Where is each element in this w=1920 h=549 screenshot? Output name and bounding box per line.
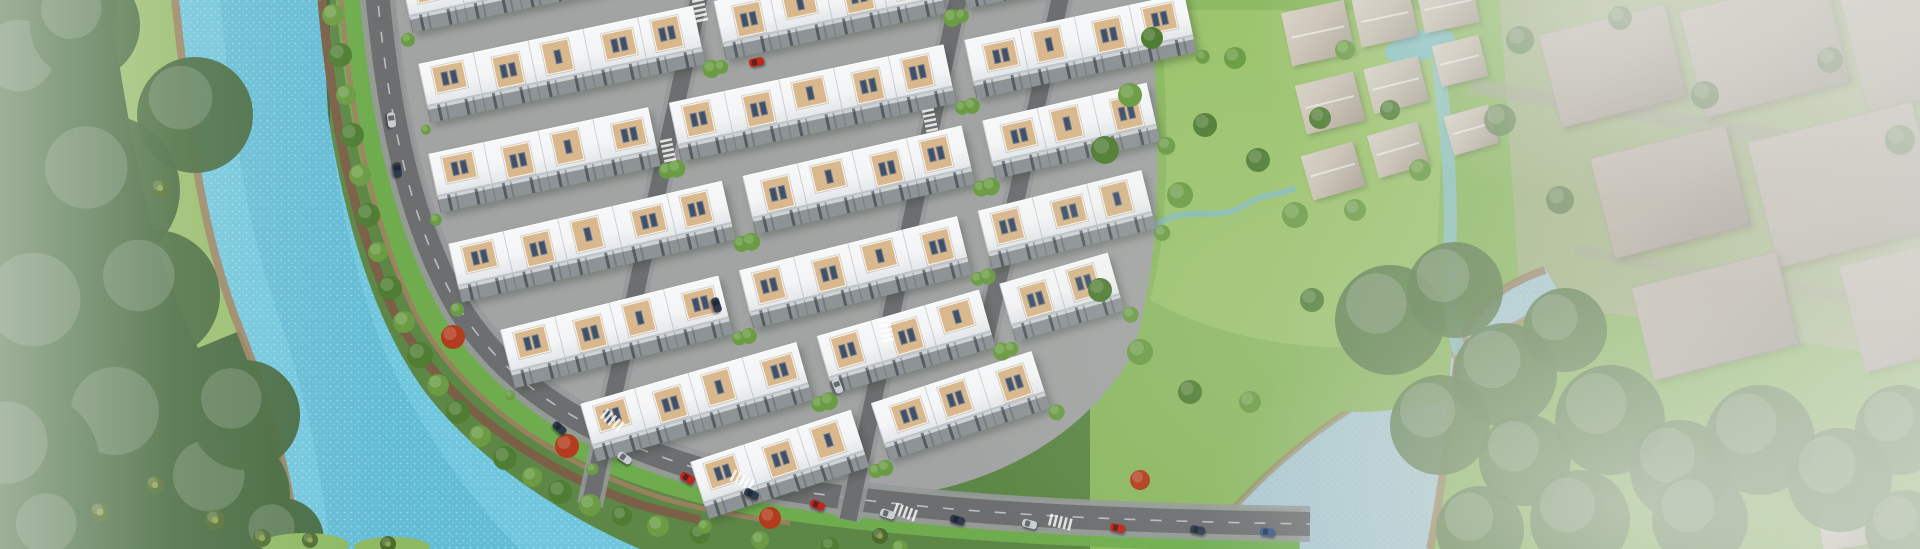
car — [679, 471, 696, 485]
aerial-render-scene — [0, 0, 1920, 549]
car — [387, 112, 397, 128]
car — [748, 57, 764, 68]
car — [616, 450, 633, 465]
car — [1021, 518, 1037, 529]
car — [1260, 527, 1276, 537]
car — [710, 297, 722, 314]
car — [949, 514, 966, 526]
car — [1109, 523, 1125, 534]
car — [831, 378, 844, 395]
car — [551, 420, 568, 436]
car — [393, 162, 403, 178]
car — [809, 498, 826, 511]
car — [879, 508, 896, 520]
traffic-layer — [0, 0, 1920, 549]
car — [1189, 525, 1205, 535]
car — [743, 487, 760, 501]
